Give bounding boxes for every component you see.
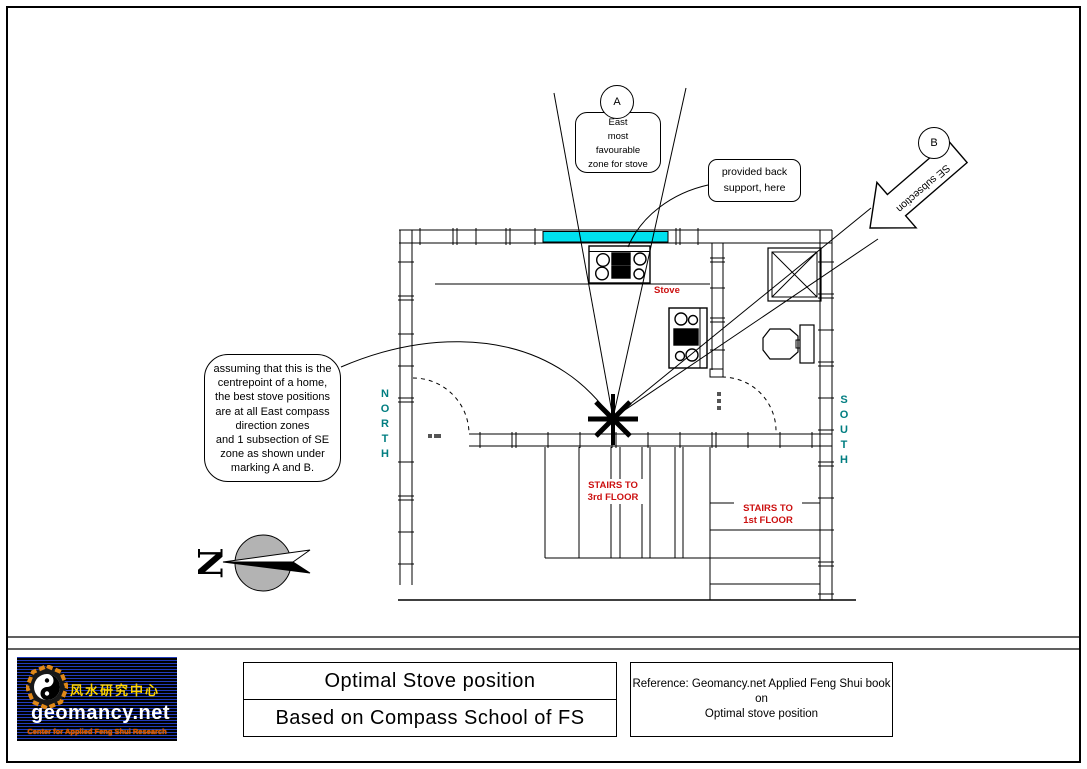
title-line-1: Optimal Stove position (244, 663, 616, 700)
toilet (763, 325, 814, 363)
stairs-1st-label: STAIRS TO 1st FLOOR (734, 502, 802, 527)
centrepoint-note-bubble: assuming that this is the centrepoint of… (204, 354, 341, 482)
walls (398, 228, 856, 600)
floor-plan-svg: SE subsection N (0, 0, 1087, 769)
stairs-3rd-label: STAIRS TO 3rd FLOOR (580, 479, 646, 504)
back-support-bubble: provided back support, here (708, 159, 801, 202)
se-subsection-arrow: SE subsection (870, 141, 967, 228)
north-compass: N (189, 535, 310, 591)
stove-label: Stove (654, 285, 680, 296)
title-line-2: Based on Compass School of FS (244, 700, 616, 736)
cooktop (589, 246, 650, 283)
marker-b: B (918, 127, 950, 159)
compass-n-letter: N (189, 547, 229, 578)
north-label: NORTH (379, 388, 391, 463)
counter-highlight (543, 232, 668, 243)
reference-box: Reference: Geomancy.net Applied Feng Shu… (630, 662, 893, 737)
south-label: SOUTH (838, 394, 850, 469)
zone-note-bubble: East most favourable zone for stove (575, 112, 661, 173)
marker-a: A (600, 85, 634, 119)
door-swings (413, 377, 776, 434)
logo-chinese-text: 风水研究中心 (70, 680, 160, 699)
drawing-canvas: SE subsection N East most favourable zon… (0, 0, 1087, 769)
stove (669, 308, 707, 368)
geomancy-logo: 风水研究中心 geomancy.net Center for Applied F… (17, 657, 177, 741)
title-block: Optimal Stove position Based on Compass … (243, 662, 617, 737)
tiny-plan-marks (428, 392, 721, 438)
logo-domain-text: geomancy.net (31, 702, 170, 725)
centrepoint-star (588, 394, 638, 445)
shower (768, 248, 821, 301)
logo-tagline: Center for Applied Feng Shui Research (17, 727, 177, 736)
page-frame (7, 7, 1080, 762)
